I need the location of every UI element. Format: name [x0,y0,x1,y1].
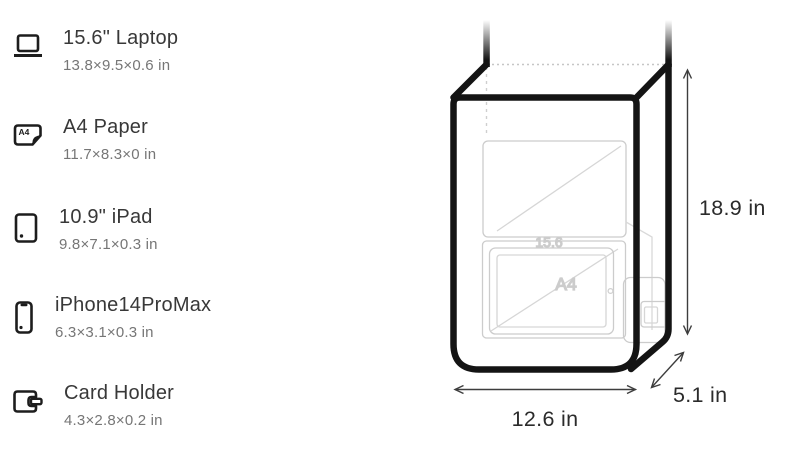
bag-outline [454,65,669,370]
height-label: 18.9 in [699,196,766,220]
bag-strap-left [483,20,490,67]
ghost-card-holder [641,302,668,328]
size-comparison-page: { "sidebar": { "items": [ {"label": "15.… [0,0,800,455]
bag-top-right-edge [637,65,669,98]
ghost-laptop [483,141,652,330]
depth-label: 5.1 in [673,383,727,407]
width-label: 12.6 in [512,407,579,431]
bag-diagram: 15.6 A4 [0,0,800,455]
width-dimension-arrow [455,386,636,394]
bag-strap-right [665,20,672,67]
height-dimension-arrow [684,70,692,334]
ghost-a4-label: A4 [555,274,577,294]
ghost-ipad [490,248,614,334]
bag-top-left-edge [454,65,487,98]
